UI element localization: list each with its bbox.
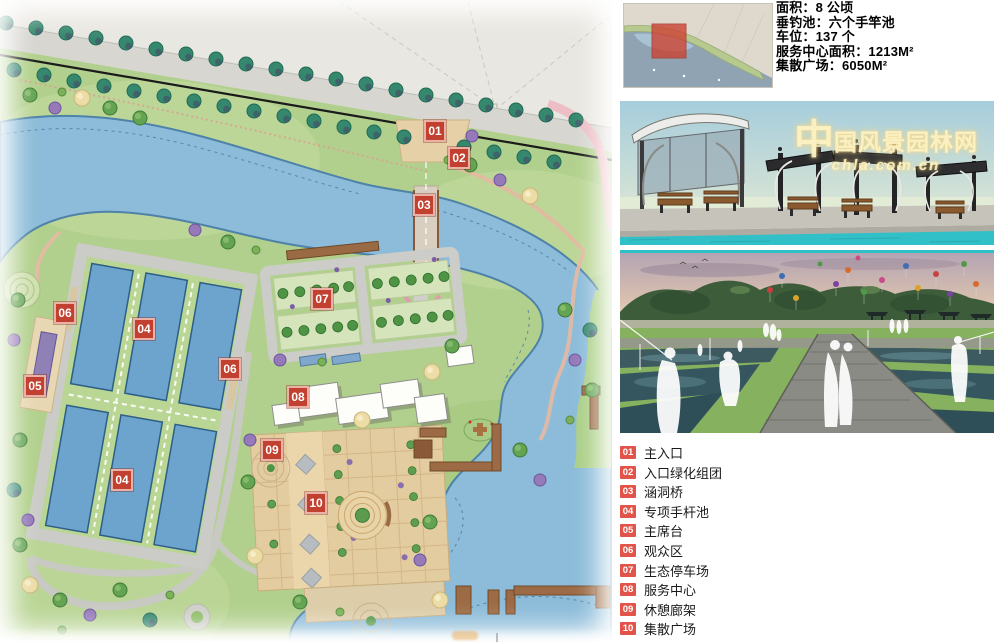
legend-label: 涵洞桥: [644, 482, 683, 501]
perspective-rendering: [620, 250, 994, 433]
legend-number-chip: 10: [620, 622, 636, 635]
legend-number-chip: 08: [620, 583, 636, 596]
plan-marker-01: 01: [424, 120, 446, 142]
legend-label: 生态停车场: [644, 561, 709, 580]
plan-marker-07: 07: [311, 288, 333, 310]
stats-line: 垂钓池：六个手竿池: [776, 16, 994, 31]
plan-marker-04: 04: [133, 318, 155, 340]
shelter-rendering: [620, 101, 994, 245]
watermark-fragment: [452, 631, 478, 640]
plan-marker-06: 06: [54, 302, 76, 324]
plan-marker-06: 06: [219, 358, 241, 380]
legend-label: 主入口: [644, 443, 683, 462]
legend-number-chip: 06: [620, 544, 636, 557]
location-map: [623, 3, 773, 88]
plan-marker-04: 04: [111, 469, 133, 491]
legend-label: 休憩廊架: [644, 600, 696, 619]
stats-line: 车位：137 个: [776, 30, 994, 45]
legend-label: 入口绿化组团: [644, 463, 722, 482]
project-stats: 面积：8 公顷垂钓池：六个手竿池车位：137 个服务中心面积：1213M²集散广…: [776, 1, 994, 74]
legend-label: 观众区: [644, 541, 683, 560]
plan-marker-03: 03: [413, 194, 435, 216]
plan-legend: 01主入口02入口绿化组团03涵洞桥04专项手杆池05主席台06观众区07生态停…: [620, 446, 994, 642]
legend-number-chip: 05: [620, 524, 636, 537]
legend-number-chip: 01: [620, 446, 636, 459]
stats-line: 服务中心面积：1213M²: [776, 45, 994, 60]
legend-row: 05主席台: [620, 524, 994, 537]
legend-number-chip: 07: [620, 564, 636, 577]
legend-row: 03涵洞桥: [620, 485, 994, 498]
plan-marker-09: 09: [261, 439, 283, 461]
legend-number-chip: 02: [620, 466, 636, 479]
plan-marker-10: 10: [305, 492, 327, 514]
legend-number-chip: 04: [620, 505, 636, 518]
legend-row: 06观众区: [620, 544, 994, 557]
legend-number-chip: 03: [620, 485, 636, 498]
legend-row: 10集散广场: [620, 622, 994, 635]
presentation-board: 010203040405060607080910 面积：8 公顷垂钓池：六个手竿…: [0, 0, 994, 642]
master-plan-drawing: [0, 0, 612, 642]
legend-row: 01主入口: [620, 446, 994, 459]
legend-row: 04专项手杆池: [620, 505, 994, 518]
legend-number-chip: 09: [620, 603, 636, 616]
site-highlight: [652, 24, 686, 58]
plan-marker-02: 02: [448, 147, 470, 169]
legend-label: 主席台: [644, 521, 683, 540]
legend-label: 服务中心: [644, 580, 696, 599]
info-panel: 面积：8 公顷垂钓池：六个手竿池车位：137 个服务中心面积：1213M²集散广…: [620, 0, 994, 642]
legend-row: 09休憩廊架: [620, 603, 994, 616]
legend-label: 专项手杆池: [644, 502, 709, 521]
master-plan: 010203040405060607080910: [0, 0, 612, 642]
stats-line: 面积：8 公顷: [776, 1, 994, 16]
legend-row: 02入口绿化组团: [620, 466, 994, 479]
watermark-fragment: [496, 633, 498, 642]
plan-marker-05: 05: [24, 375, 46, 397]
legend-row: 08服务中心: [620, 583, 994, 596]
legend-label: 集散广场: [644, 619, 696, 638]
legend-row: 07生态停车场: [620, 564, 994, 577]
stats-line: 集散广场：6050M²: [776, 59, 994, 74]
plan-marker-08: 08: [287, 386, 309, 408]
